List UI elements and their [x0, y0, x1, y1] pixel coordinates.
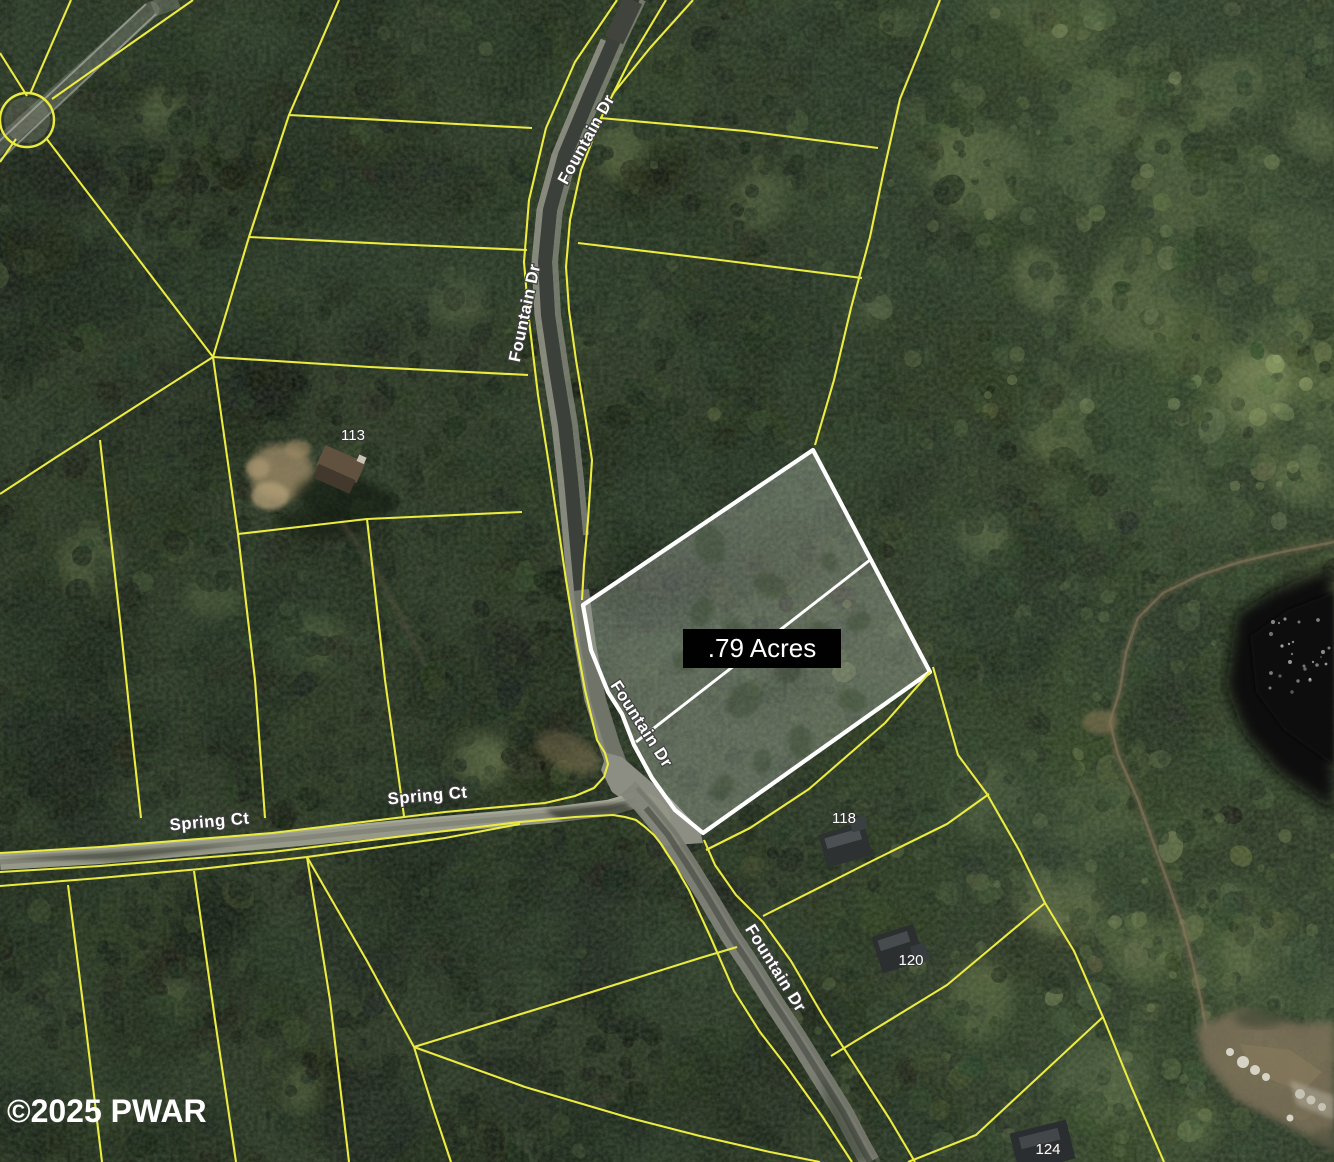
svg-text:124: 124 — [1035, 1141, 1060, 1158]
svg-text:©2025 PWAR: ©2025 PWAR — [7, 1093, 207, 1129]
svg-text:113: 113 — [341, 427, 365, 444]
svg-text:118: 118 — [832, 810, 856, 827]
svg-text:.79 Acres: .79 Acres — [708, 633, 816, 663]
svg-text:120: 120 — [898, 952, 923, 969]
